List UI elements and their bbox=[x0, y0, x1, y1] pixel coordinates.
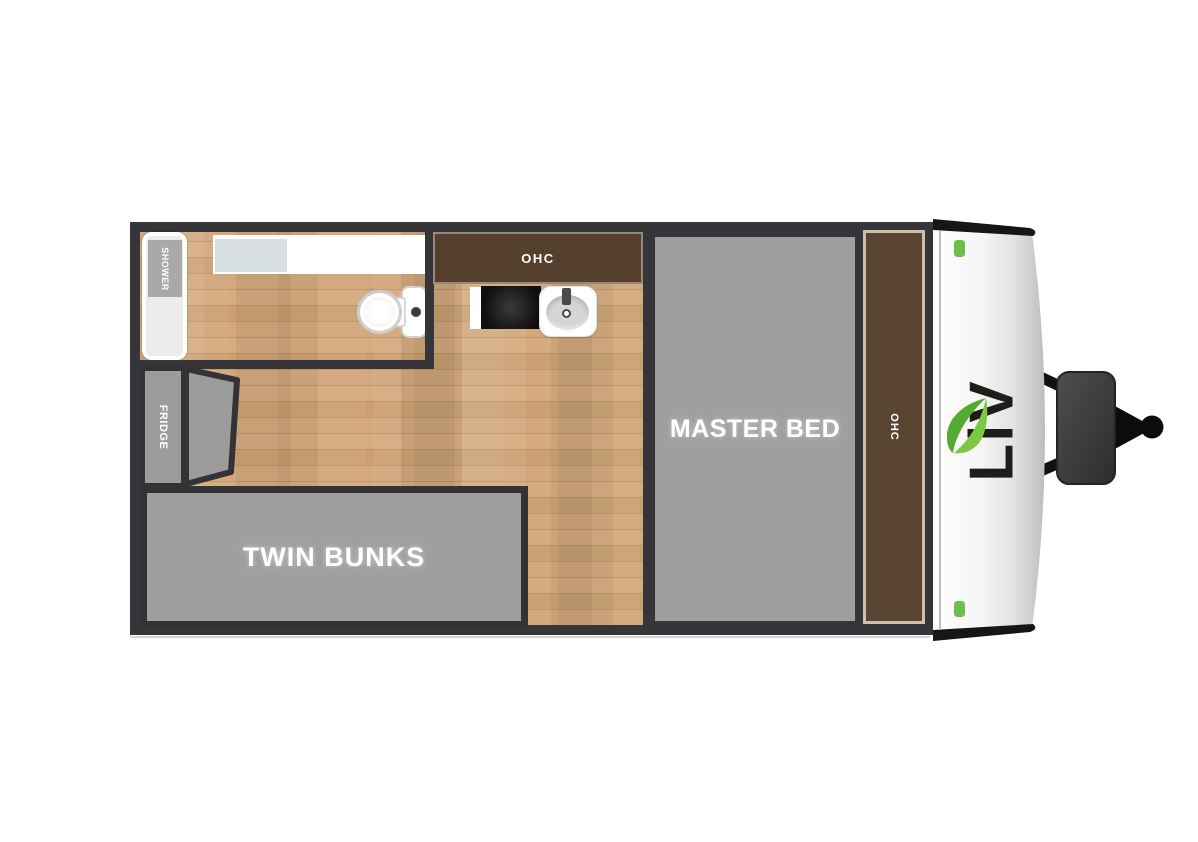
shower-panel: SHOWER bbox=[148, 240, 182, 297]
master-bed-label: MASTER BED bbox=[670, 415, 840, 444]
master-bed: MASTER BED bbox=[655, 237, 855, 621]
kitchen-overhead-cabinet: OHC bbox=[433, 232, 643, 284]
sink-drain bbox=[562, 309, 571, 318]
hitch-ball bbox=[1141, 416, 1164, 439]
toilet-icon bbox=[357, 290, 402, 334]
twin-bunks: TWIN BUNKS bbox=[147, 493, 521, 621]
stove-side-panel bbox=[470, 287, 481, 329]
toilet-flush-button bbox=[411, 307, 421, 317]
hitch-box bbox=[1057, 372, 1115, 484]
rear-overhead-cabinet: OHC bbox=[863, 230, 925, 624]
fridge-door-open bbox=[183, 363, 245, 491]
twin-bunks-label: TWIN BUNKS bbox=[243, 542, 425, 573]
shower-label: SHOWER bbox=[160, 247, 170, 291]
rear-ohc-label: OHC bbox=[888, 413, 900, 440]
bathroom-sink-cutout bbox=[215, 239, 287, 272]
faucet-icon bbox=[562, 288, 571, 305]
body-shadow-line bbox=[130, 636, 930, 638]
clearance-light-top bbox=[954, 240, 965, 257]
fridge-label: FRIDGE bbox=[157, 405, 169, 450]
kitchen-ohc-label: OHC bbox=[521, 251, 554, 266]
nose-seam-line bbox=[939, 231, 941, 630]
stove-icon bbox=[481, 286, 541, 329]
clearance-light-bottom bbox=[954, 601, 965, 617]
leaf-icon bbox=[942, 394, 990, 456]
floorplan-canvas: SHOWER OHC FRIDGE TWIN BUNKS MASTER BED … bbox=[0, 0, 1198, 842]
fridge: FRIDGE bbox=[145, 371, 181, 483]
